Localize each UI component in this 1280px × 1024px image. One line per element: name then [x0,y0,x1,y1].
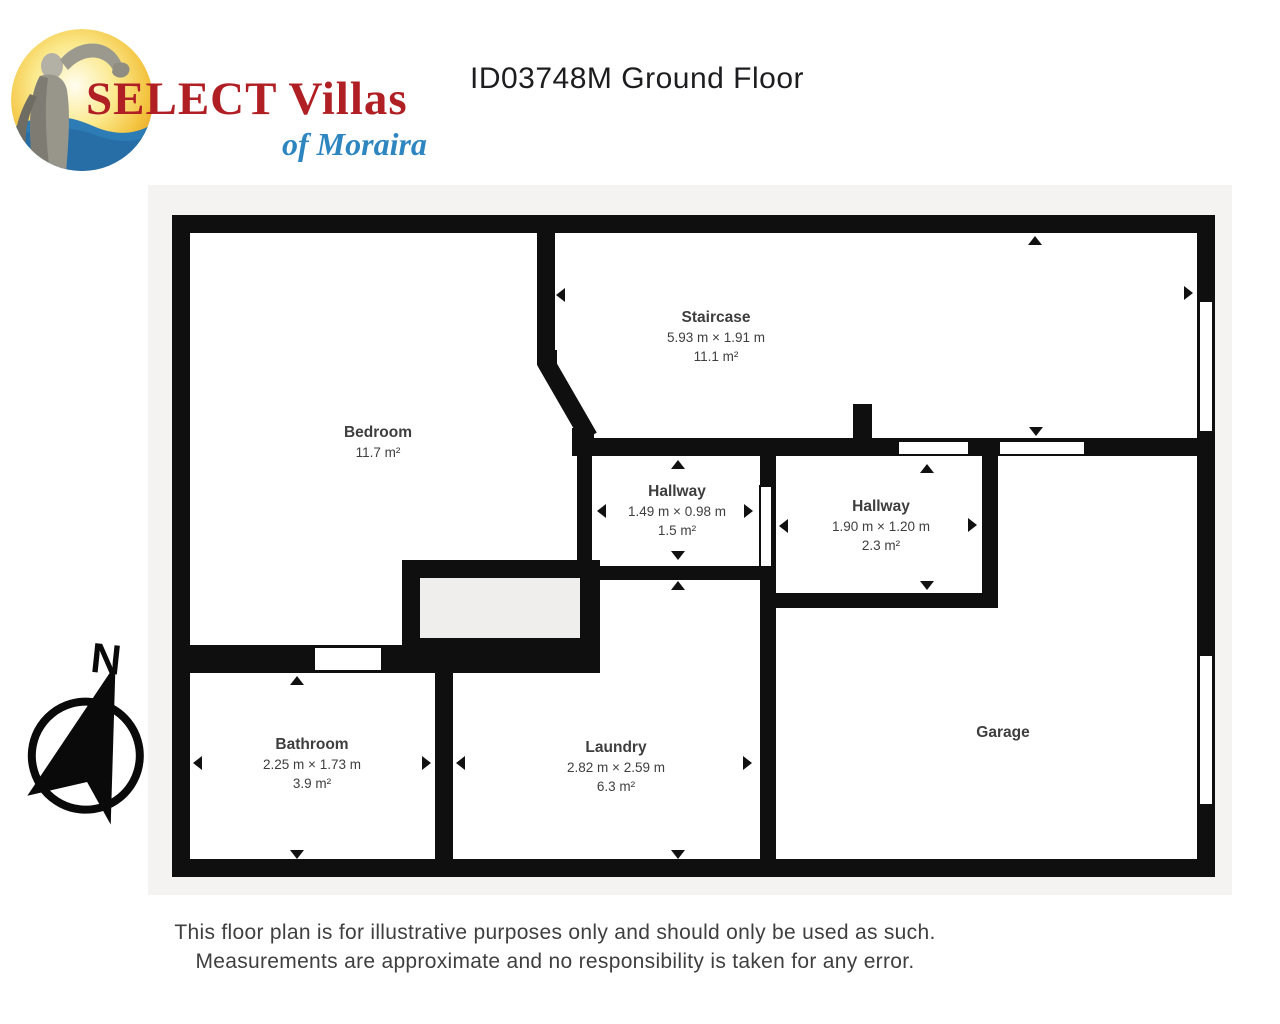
compass-north-label: N [89,634,124,684]
hallway2-right-wall [982,456,998,608]
outer-wall-top [172,215,1215,233]
room-label-laundry: Laundry 2.82 m × 2.59 m 6.3 m² [521,737,711,796]
room-area: 6.3 m² [521,777,711,796]
closet-inset [420,578,580,638]
room-label-bedroom: Bedroom 11.7 m² [278,422,478,462]
measure-arrow-down [671,551,685,560]
room-label-hallway-2: Hallway 1.90 m × 1.20 m 2.3 m² [786,496,976,555]
room-area: 11.7 m² [278,443,478,462]
measure-arrow-down [1029,427,1043,436]
measure-arrow-down [290,850,304,859]
room-name: Garage [943,722,1063,743]
measure-arrow-right [422,756,431,770]
bathroom-laundry-wall [435,645,453,859]
outer-wall-bottom [172,859,1215,877]
measure-arrow-up [290,676,304,685]
room-label-staircase: Staircase 5.93 m × 1.91 m 11.1 m² [616,307,816,366]
room-label-bathroom: Bathroom 2.25 m × 1.73 m 3.9 m² [217,734,407,793]
room-name: Hallway [588,481,766,502]
staircase-bottom-wall [572,438,1215,456]
staircase-wall-stub [853,404,872,440]
measure-arrow-up [1028,236,1042,245]
room-dims: 5.93 m × 1.91 m [616,328,816,347]
bathroom-door-opening [313,646,383,672]
hallway2-door-opening [897,440,970,456]
room-name: Bathroom [217,734,407,755]
measure-arrow-right [743,756,752,770]
floor-plan-page: SELECT Villas of Moraira ID03748M Ground… [0,0,1280,1024]
disclaimer: This floor plan is for illustrative purp… [60,918,1050,976]
room-name: Bedroom [278,422,478,443]
room-dims: 1.49 m × 0.98 m [588,502,766,521]
measure-arrow-left [556,288,565,302]
room-dims: 1.90 m × 1.20 m [786,517,976,536]
staircase-window [1198,300,1214,433]
page-title: ID03748M Ground Floor [470,62,804,96]
measure-arrow-left [456,756,465,770]
hallway2-bottom-wall [760,593,998,608]
wall-joint [537,350,557,365]
measure-arrow-right [1184,286,1193,300]
measure-arrow-up [671,460,685,469]
logo-tagline: of Moraira [282,126,427,163]
hallway1-bottom-wall [577,566,775,580]
measure-arrow-down [671,850,685,859]
room-name: Hallway [786,496,976,517]
disclaimer-line-2: Measurements are approximate and no resp… [60,947,1050,976]
room-area: 11.1 m² [616,347,816,366]
measure-arrow-up [671,581,685,590]
garage-door-opening [998,440,1086,456]
garage-window [1198,654,1214,806]
room-area: 1.5 m² [588,521,766,540]
room-name: Staircase [616,307,816,328]
room-dims: 2.82 m × 2.59 m [521,758,711,777]
measure-arrow-left [193,756,202,770]
bedroom-staircase-wall [537,233,555,363]
logo-wordmark: SELECT Villas [86,72,408,126]
room-dims: 2.25 m × 1.73 m [217,755,407,774]
room-area: 3.9 m² [217,774,407,793]
measure-arrow-up [920,464,934,473]
room-area: 2.3 m² [786,536,976,555]
room-label-garage: Garage [943,722,1063,743]
room-label-hallway-1: Hallway 1.49 m × 0.98 m 1.5 m² [588,481,766,540]
room-name: Laundry [521,737,711,758]
measure-arrow-down [920,581,934,590]
disclaimer-line-1: This floor plan is for illustrative purp… [60,918,1050,947]
outer-wall-left [172,215,190,877]
compass-north-icon: N [24,624,154,834]
